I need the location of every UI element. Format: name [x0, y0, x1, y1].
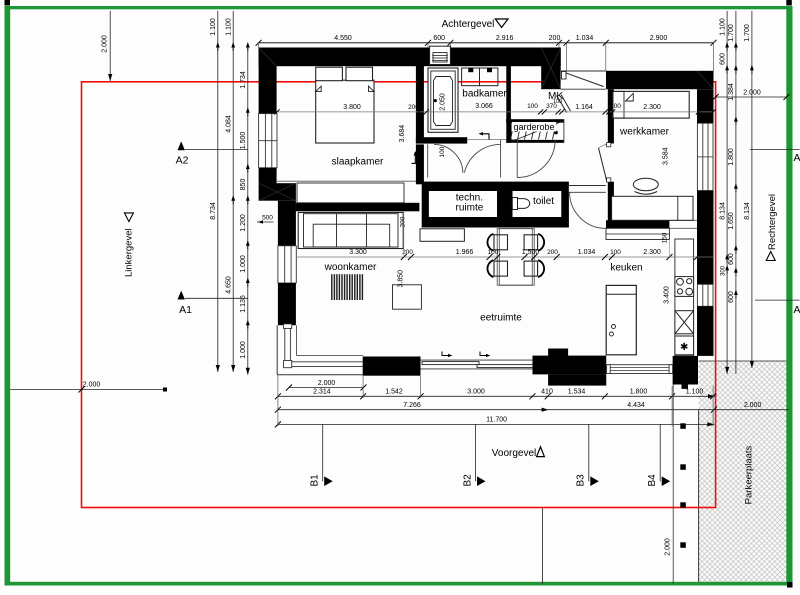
svg-text:7.266: 7.266	[403, 402, 421, 409]
svg-text:1.542: 1.542	[385, 389, 403, 396]
svg-text:4.434: 4.434	[627, 402, 645, 409]
svg-text:3.066: 3.066	[475, 103, 493, 110]
svg-text:1.164: 1.164	[575, 104, 593, 111]
svg-text:1.500: 1.500	[240, 132, 247, 150]
svg-text:2.050: 2.050	[440, 93, 447, 111]
svg-text:1.000: 1.000	[240, 255, 247, 273]
svg-text:1.000: 1.000	[240, 341, 247, 359]
svg-text:Parkeerplaats: Parkeerplaats	[744, 445, 755, 504]
svg-text:2.000: 2.000	[83, 382, 101, 389]
svg-text:600: 600	[433, 35, 445, 42]
svg-text:2.916: 2.916	[496, 35, 514, 42]
svg-text:1.800: 1.800	[630, 389, 648, 396]
svg-text:100: 100	[527, 103, 538, 110]
svg-text:1.700: 1.700	[728, 24, 735, 42]
svg-text:1.700: 1.700	[744, 24, 751, 42]
svg-text:1.384: 1.384	[728, 83, 735, 101]
svg-text:2.000: 2.000	[318, 380, 336, 387]
svg-text:A: A	[793, 152, 800, 164]
svg-text:3.850: 3.850	[398, 270, 405, 288]
svg-text:Rechtergevel: Rechtergevel	[767, 194, 778, 250]
svg-text:1.034: 1.034	[576, 35, 594, 42]
svg-text:woonkamer: woonkamer	[324, 262, 377, 273]
svg-text:600: 600	[728, 291, 735, 303]
svg-text:200: 200	[547, 249, 558, 256]
svg-text:600: 600	[719, 53, 726, 65]
svg-text:410: 410	[541, 389, 553, 396]
svg-text:1.650: 1.650	[728, 212, 735, 230]
svg-text:1.034: 1.034	[578, 249, 596, 256]
svg-text:500: 500	[262, 215, 273, 222]
svg-text:MK: MK	[548, 91, 563, 102]
svg-text:toilet: toilet	[533, 196, 554, 207]
svg-text:100: 100	[439, 146, 446, 157]
svg-text:1.966: 1.966	[456, 249, 474, 256]
svg-text:4.650: 4.650	[225, 276, 232, 294]
svg-text:1.100: 1.100	[686, 389, 704, 396]
svg-text:werkkamer: werkkamer	[619, 127, 670, 138]
svg-text:slaapkamer: slaapkamer	[332, 157, 384, 168]
svg-text:100: 100	[488, 249, 499, 256]
svg-text:1.100: 1.100	[225, 18, 232, 36]
svg-text:850: 850	[240, 179, 247, 191]
svg-text:11.700: 11.700	[486, 417, 507, 424]
svg-text:3.300: 3.300	[349, 249, 367, 256]
svg-text:B2: B2	[462, 474, 473, 487]
svg-text:200: 200	[400, 216, 407, 227]
svg-text:B3: B3	[576, 474, 587, 487]
svg-text:1.734: 1.734	[240, 71, 247, 89]
svg-text:2.300: 2.300	[643, 104, 661, 111]
svg-text:1.100: 1.100	[719, 18, 726, 36]
svg-text:100: 100	[610, 249, 621, 256]
svg-text:Achtergevel: Achtergevel	[442, 19, 495, 30]
svg-text:Voorgevel: Voorgevel	[492, 448, 536, 459]
svg-text:B1: B1	[310, 474, 321, 487]
svg-text:3.400: 3.400	[664, 286, 671, 304]
svg-text:badkamer: badkamer	[462, 89, 507, 100]
svg-text:A1: A1	[179, 304, 192, 316]
svg-text:8.734: 8.734	[210, 202, 217, 220]
svg-text:garderobe: garderobe	[513, 122, 554, 132]
svg-text:300: 300	[720, 265, 726, 276]
svg-text:100: 100	[610, 103, 621, 110]
svg-text:3.000: 3.000	[467, 389, 485, 396]
svg-text:4.550: 4.550	[334, 35, 352, 42]
svg-text:1.500: 1.500	[522, 249, 540, 256]
svg-text:8.134: 8.134	[744, 202, 751, 220]
svg-text:200: 200	[549, 35, 561, 42]
svg-text:1.534: 1.534	[568, 389, 586, 396]
svg-text:B4: B4	[647, 474, 658, 487]
svg-text:4.084: 4.084	[225, 115, 232, 133]
svg-text:2.000: 2.000	[744, 402, 762, 409]
svg-text:600: 600	[728, 253, 735, 265]
svg-text:2.000: 2.000	[102, 35, 109, 53]
svg-text:keuken: keuken	[610, 263, 642, 274]
svg-text:2.300: 2.300	[643, 249, 661, 256]
svg-text:3.684: 3.684	[399, 125, 406, 143]
svg-text:✱: ✱	[680, 342, 688, 353]
svg-text:1.800: 1.800	[728, 148, 735, 166]
svg-text:Linkergevel: Linkergevel	[124, 228, 135, 277]
svg-text:A2: A2	[176, 155, 189, 167]
svg-text:3.584: 3.584	[663, 147, 670, 165]
svg-text:ruimte: ruimte	[456, 203, 484, 214]
svg-text:2.000: 2.000	[665, 538, 672, 556]
svg-text:2.314: 2.314	[313, 389, 331, 396]
svg-text:8.134: 8.134	[719, 202, 726, 220]
svg-text:1.136: 1.136	[240, 295, 247, 313]
svg-text:A: A	[793, 304, 800, 316]
svg-text:2.000: 2.000	[743, 90, 761, 97]
svg-text:200: 200	[408, 104, 419, 111]
svg-text:2.900: 2.900	[650, 35, 668, 42]
svg-text:3.800: 3.800	[343, 104, 361, 111]
svg-text:1.100: 1.100	[210, 18, 217, 36]
svg-text:eetruimte: eetruimte	[480, 313, 522, 324]
svg-text:1.200: 1.200	[240, 214, 247, 232]
svg-text:150: 150	[662, 232, 669, 243]
